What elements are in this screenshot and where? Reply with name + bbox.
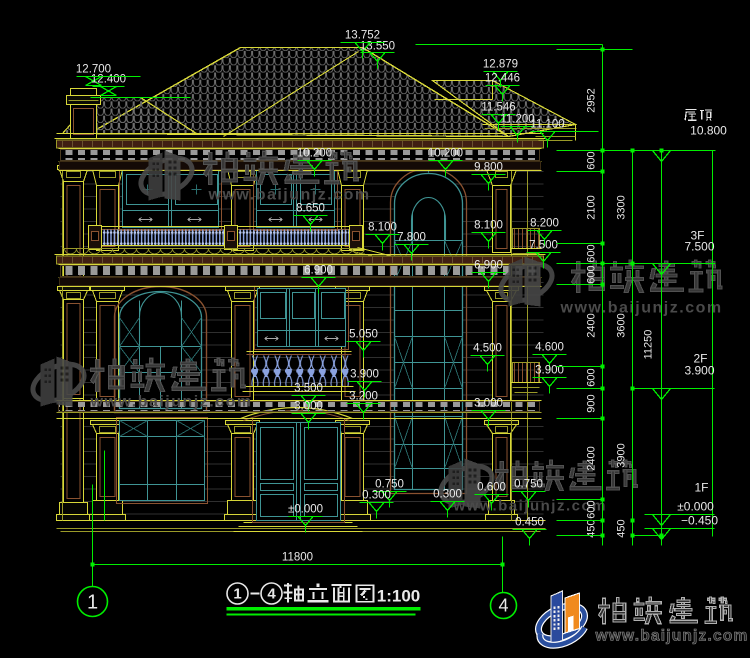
svg-text:4: 4 [267, 586, 276, 603]
svg-text:6.900: 6.900 [474, 260, 503, 272]
svg-text:7.800: 7.800 [397, 232, 426, 244]
svg-text:5.050: 5.050 [349, 329, 378, 341]
svg-text:11250: 11250 [643, 330, 655, 360]
svg-text:1: 1 [233, 586, 241, 603]
svg-text:8.650: 8.650 [296, 203, 325, 215]
svg-text:450: 450 [616, 519, 628, 537]
svg-text:3600: 3600 [616, 313, 628, 337]
svg-text:8.200: 8.200 [530, 218, 559, 230]
svg-text:600: 600 [586, 151, 598, 169]
svg-text:7.500: 7.500 [529, 240, 558, 252]
svg-text:11.546: 11.546 [481, 102, 515, 114]
svg-text:10.200: 10.200 [428, 148, 463, 160]
svg-text:3900: 3900 [616, 443, 628, 467]
svg-text:0.450: 0.450 [515, 517, 544, 529]
svg-text:8.100: 8.100 [474, 220, 503, 232]
svg-text:450: 450 [586, 519, 598, 537]
svg-text:4.500: 4.500 [473, 343, 502, 355]
svg-text:11.100: 11.100 [530, 119, 564, 131]
svg-text:±0.000: ±0.000 [677, 500, 714, 514]
svg-text:12.400: 12.400 [91, 74, 126, 86]
svg-text:600: 600 [586, 265, 598, 283]
svg-text:4: 4 [498, 596, 508, 616]
svg-text:10.200: 10.200 [297, 148, 332, 160]
svg-text:3.000: 3.000 [294, 401, 323, 413]
svg-text:11800: 11800 [282, 552, 313, 564]
svg-text:3.000: 3.000 [474, 398, 503, 410]
svg-text:0.600: 0.600 [477, 482, 506, 494]
svg-text:1F: 1F [694, 481, 708, 495]
svg-text:www.baijunjz.com: www.baijunjz.com [595, 628, 749, 645]
svg-text:2100: 2100 [586, 195, 598, 219]
svg-text:0.300: 0.300 [433, 489, 462, 501]
svg-text:1: 1 [87, 592, 98, 614]
svg-text:www.baijunjz.com: www.baijunjz.com [90, 394, 253, 411]
svg-text:3.200: 3.200 [349, 391, 378, 403]
svg-text:3.500: 3.500 [294, 383, 323, 395]
svg-text:600: 600 [586, 368, 598, 386]
svg-text:12.879: 12.879 [483, 59, 518, 71]
svg-text:900: 900 [586, 394, 598, 412]
svg-text:2400: 2400 [586, 446, 598, 470]
svg-text:3.900: 3.900 [350, 369, 379, 381]
svg-text:4.600: 4.600 [535, 342, 564, 354]
svg-text:7.500: 7.500 [684, 240, 714, 254]
svg-text:600: 600 [586, 244, 598, 262]
svg-text:0.750: 0.750 [514, 479, 543, 491]
svg-text:0.300: 0.300 [362, 490, 391, 502]
svg-text:www.baijunjz.com: www.baijunjz.com [453, 498, 607, 515]
svg-text:6.900: 6.900 [304, 265, 333, 277]
svg-text:8.100: 8.100 [368, 222, 397, 234]
svg-text:3.900: 3.900 [684, 364, 714, 378]
svg-text:10.800: 10.800 [690, 124, 727, 138]
svg-text:12.446: 12.446 [485, 73, 520, 85]
svg-text:9.800: 9.800 [474, 162, 503, 174]
svg-text:−0.450: −0.450 [681, 514, 718, 528]
svg-text:3300: 3300 [616, 195, 628, 219]
svg-text:2952: 2952 [586, 88, 598, 112]
svg-text:1:100: 1:100 [377, 587, 420, 606]
svg-text:www.baijunjz.com: www.baijunjz.com [208, 187, 371, 204]
svg-text:www.baijunjz.com: www.baijunjz.com [560, 300, 723, 317]
svg-text:600: 600 [586, 500, 598, 518]
svg-text:2400: 2400 [586, 313, 598, 337]
svg-text:±0.000: ±0.000 [288, 504, 323, 516]
